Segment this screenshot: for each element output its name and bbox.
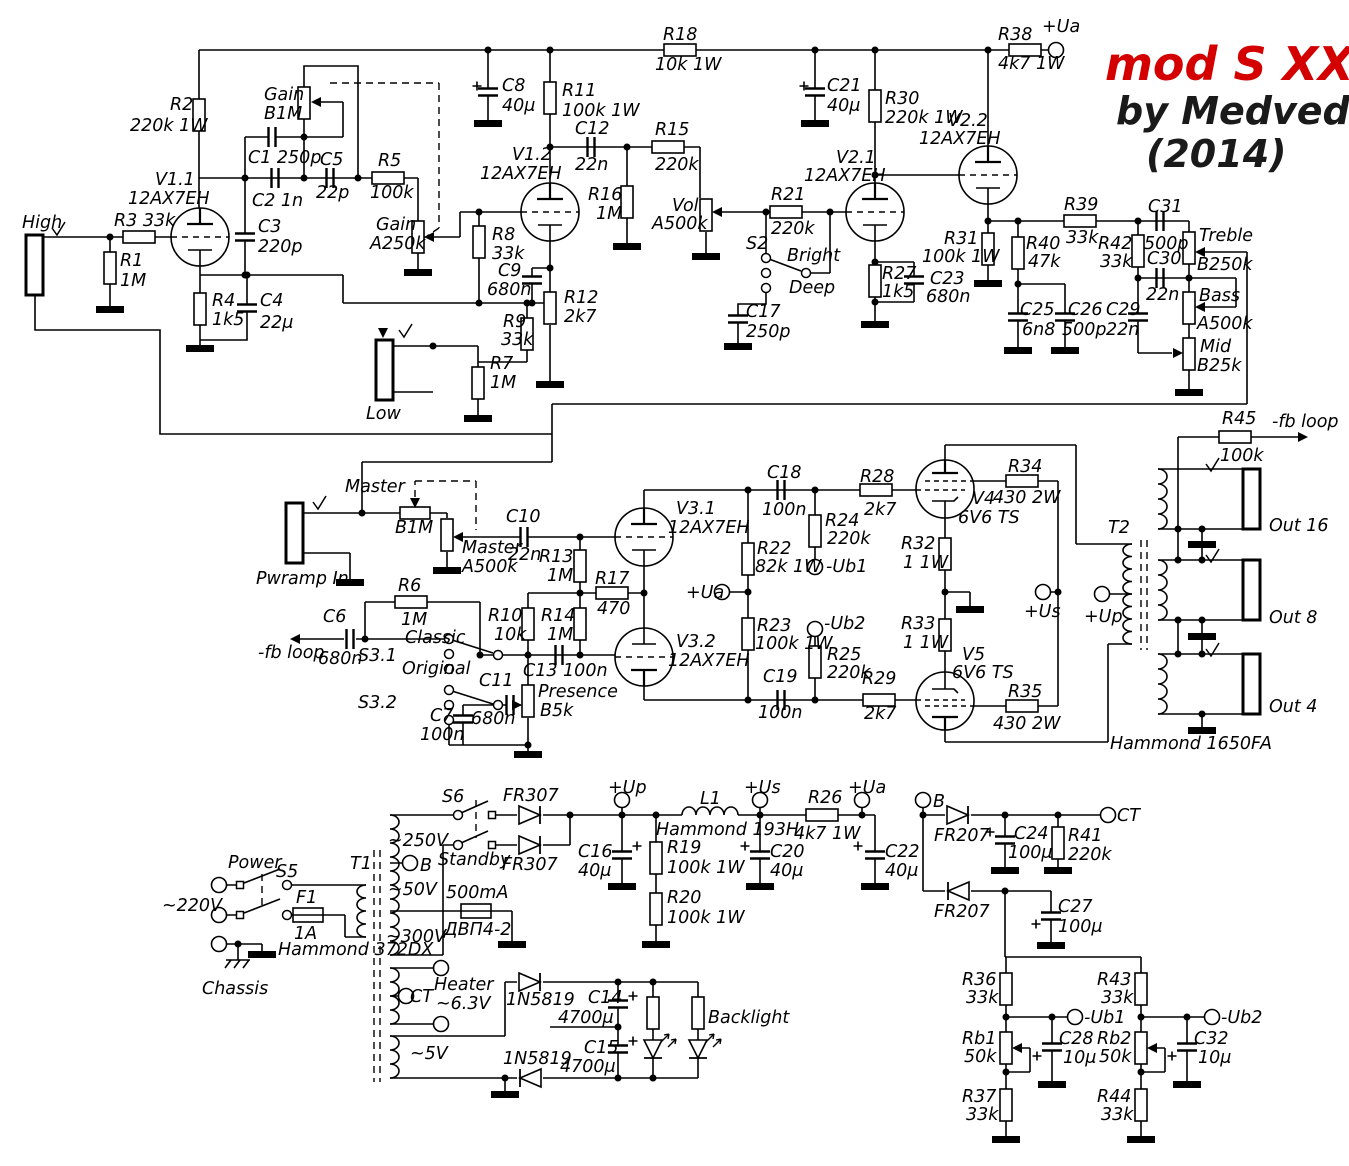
cap-C8 <box>478 89 498 96</box>
label-r19: R19 <box>667 838 701 858</box>
diode-FR207-2 <box>948 882 969 900</box>
wiper-arrow-icon <box>1147 1043 1157 1053</box>
label-r8: R8 <box>492 225 515 245</box>
label-ub2m: -Ub2 <box>824 614 865 634</box>
label-r38v: 4k7 1W <box>998 54 1065 74</box>
label-c7v: 100n <box>420 725 465 745</box>
diode-1N5819-2 <box>520 1069 541 1087</box>
cap-C6 <box>347 629 354 649</box>
resistor-R4 <box>194 293 206 325</box>
ground <box>861 883 889 890</box>
label-c9v: 680n <box>487 280 532 300</box>
label-v250: ~250V <box>388 831 449 851</box>
label-r38: R38 <box>998 25 1032 45</box>
ground <box>608 883 636 890</box>
terminal-ub1-psu <box>1068 1010 1083 1025</box>
coil-T2-sec8 <box>1158 560 1167 620</box>
terminal-ub2-psu <box>1205 1010 1220 1025</box>
diode-FR307-2 <box>519 836 540 854</box>
label-c17v: 250p <box>746 322 791 342</box>
cap-C22 <box>865 852 885 859</box>
label-title1: mod S XX <box>1105 37 1349 91</box>
resistor-backlight-1 <box>647 997 659 1029</box>
label-rb1: Rb1 <box>962 1029 996 1049</box>
switch-S5-contact <box>283 911 292 920</box>
terminal-heater-1 <box>434 961 449 976</box>
ground <box>801 120 829 127</box>
label-c14: C14 <box>588 988 623 1008</box>
label-f1: F1 <box>296 888 317 908</box>
switch-S2-contact <box>762 254 771 263</box>
diode-FR207-1 <box>947 806 968 824</box>
label-v22: V2.2 <box>948 111 988 131</box>
label-classic: Classic <box>405 628 466 648</box>
pot-presence-B5k <box>522 685 534 717</box>
wiper-arrow-icon <box>311 97 321 107</box>
label-c3v: 220p <box>258 237 303 257</box>
switch-S2-contact <box>762 284 771 293</box>
switch-S6-pole <box>489 842 496 849</box>
terminal-B-psu <box>916 793 931 808</box>
label-r40: R40 <box>1026 234 1060 254</box>
label-c15v: 4700μ <box>560 1057 616 1077</box>
tube-amp-schematic: mod S XXby Medved(2014)HighR3 33kR11MV1.… <box>0 0 1349 1166</box>
label-usb: +Us <box>744 778 781 798</box>
ground <box>1188 727 1216 734</box>
ground <box>1044 867 1072 874</box>
label-r10: R10 <box>488 606 522 626</box>
label-r31: R31 <box>944 229 978 249</box>
tube-V2.1 <box>846 183 904 241</box>
switch-S2-contact <box>762 269 771 278</box>
resistor-R8 <box>473 226 485 258</box>
polarity-plus-icon <box>1032 920 1041 929</box>
ground <box>1175 389 1203 396</box>
label-c32: C32 <box>1194 1029 1229 1049</box>
jack-high-input <box>26 235 43 295</box>
label-r26v: 4k7 1W <box>794 824 861 844</box>
label-c5: C5 <box>320 150 343 170</box>
label-c9: C9 <box>498 261 521 281</box>
label-v12: V1.2 <box>512 145 552 165</box>
terminal-up-mid <box>1095 587 1110 602</box>
label-c6: C6 <box>323 607 346 627</box>
label-r28v: 2k7 <box>864 500 896 520</box>
terminal-B-tap <box>403 856 418 871</box>
label-ctt: CT <box>410 987 434 1007</box>
diode-1N5819-1 <box>519 973 540 991</box>
coil-T1-primary <box>357 885 366 937</box>
polarity-plus-icon <box>741 842 750 851</box>
ground <box>404 269 432 276</box>
label-r16: R16 <box>588 185 622 205</box>
resistor-R45 <box>1219 431 1251 443</box>
label-r42: R42 <box>1098 234 1132 254</box>
polarity-plus-icon <box>629 992 638 1001</box>
tube-V3.2 <box>615 628 673 686</box>
label-v31t: 12AX7EH <box>668 518 750 538</box>
switch-S3.1-contact <box>445 650 454 659</box>
pot-bass-A500k <box>1183 292 1195 324</box>
label-t1: T1 <box>350 854 372 874</box>
label-c8: C8 <box>502 76 525 96</box>
label-c5v: 22p <box>316 183 349 203</box>
label-vol: Vol <box>672 196 699 216</box>
label-c11: C11 <box>479 671 514 691</box>
label-r34v: 430 2W <box>993 488 1061 508</box>
polarity-plus-icon <box>629 1037 638 1046</box>
label-c18v: 100n <box>762 500 807 520</box>
led-backlight-1 <box>644 1040 662 1058</box>
label-uam: +Ua <box>686 583 724 603</box>
ground <box>1051 347 1079 354</box>
label-c12v: 22n <box>575 155 608 175</box>
label-low: Low <box>366 404 401 424</box>
label-r2: R2 <box>170 95 193 115</box>
label-master1: Master <box>345 477 407 497</box>
label-c17: C17 <box>746 302 781 322</box>
switch-S5-pole <box>237 912 244 919</box>
label-fr207a: FR207 <box>934 826 990 846</box>
label-r19v: 100k 1W <box>667 858 745 878</box>
switch-S6-contact <box>454 841 463 850</box>
ground <box>1127 1136 1155 1143</box>
ground <box>536 381 564 388</box>
label-c27: C27 <box>1058 897 1093 917</box>
ground <box>861 321 889 328</box>
label-c26v: 500p <box>1062 320 1107 340</box>
tube-V1.2 <box>521 183 579 241</box>
label-r27: R27 <box>882 264 916 284</box>
input-arrow-icon <box>378 328 388 338</box>
label-treblev: B250k <box>1197 255 1253 275</box>
label-r33v: 1 1W <box>903 633 949 653</box>
label-c29: C29 <box>1106 300 1141 320</box>
label-master1v: B1M <box>395 518 433 538</box>
label-r14v: 1M <box>547 625 573 645</box>
label-btap: B <box>420 856 432 876</box>
label-out4: Out 4 <box>1269 697 1317 717</box>
label-s6: S6 <box>442 787 464 807</box>
diode-FR307-1 <box>519 806 540 824</box>
schematic-labels: mod S XXby Medved(2014)HighR3 33kR11MV1.… <box>22 17 1349 1125</box>
label-midv: B25k <box>1197 356 1242 376</box>
ground <box>746 883 774 890</box>
label-chassis: Chassis <box>202 979 268 999</box>
wiper-arrow-icon <box>1012 1043 1022 1053</box>
resistor-R26 <box>806 809 838 821</box>
jack-low-input <box>376 340 393 400</box>
cap-C1 <box>269 127 276 147</box>
terminal-ct-psu <box>1101 808 1116 823</box>
label-bassv: A500k <box>1196 314 1253 334</box>
label-r44v: 33k <box>1101 1105 1134 1125</box>
label-f500: 500mA <box>446 883 508 903</box>
ground <box>433 567 461 574</box>
label-fr307a: FR307 <box>503 786 559 806</box>
coil-T2-sec4 <box>1158 654 1167 714</box>
label-c7: C7 <box>430 706 453 726</box>
label-c29v: 22n <box>1106 320 1139 340</box>
label-r27v: 1k5 <box>882 282 914 302</box>
label-r36v: 33k <box>966 988 999 1008</box>
resistor-R20 <box>650 893 662 925</box>
label-c16: C16 <box>578 842 613 862</box>
label-s32: S3.2 <box>358 693 397 713</box>
label-c20v: 40μ <box>770 861 803 881</box>
ground <box>1037 942 1065 949</box>
label-c28: C28 <box>1059 1029 1094 1049</box>
label-presv: B5k <box>540 701 574 721</box>
label-upm: +Up <box>1084 607 1123 627</box>
label-r24v: 220k <box>827 529 871 549</box>
label-r22v: 82k 1W <box>755 557 822 577</box>
ground <box>974 280 1002 287</box>
ground <box>956 606 984 613</box>
label-c13: C13 100n <box>523 661 608 681</box>
jack-switch-icon <box>313 496 326 509</box>
ground <box>1038 1081 1066 1088</box>
ground <box>248 951 276 958</box>
label-r43v: 33k <box>1101 988 1134 1008</box>
label-v4t: 6V6 TS <box>958 508 1020 528</box>
label-v31: V3.1 <box>676 499 716 519</box>
label-r17: R17 <box>595 569 629 589</box>
pot-Rb1 <box>1000 1032 1012 1064</box>
label-r6: R6 <box>398 576 421 596</box>
label-c24v: 100μ <box>1008 843 1053 863</box>
fuse-F1 <box>293 908 323 922</box>
label-fr207b: FR207 <box>934 902 990 922</box>
label-r12: R12 <box>564 288 598 308</box>
label-s2: S2 <box>746 234 768 254</box>
label-r40v: 47k <box>1028 252 1061 272</box>
label-treble: Treble <box>1199 226 1253 246</box>
resistor-R7 <box>472 367 484 399</box>
fuse-500mA <box>461 904 491 918</box>
label-c4v: 22μ <box>260 313 293 333</box>
label-r14: R14 <box>541 606 575 626</box>
label-fbl2: -fb loop <box>1272 412 1339 432</box>
label-r5v: 100k <box>370 183 414 203</box>
label-v11: V1.1 <box>155 170 195 190</box>
resistor-R13 <box>574 550 586 582</box>
label-d1n a: 1N5819 <box>506 990 575 1010</box>
coil-T1-5v <box>390 1036 399 1078</box>
ground <box>474 120 502 127</box>
polarity-plus-icon <box>633 842 642 851</box>
switch-S3.2-contact <box>445 686 454 695</box>
label-v21t: 12AX7EH <box>804 166 886 186</box>
label-c20: C20 <box>770 842 805 862</box>
label-r39: R39 <box>1064 195 1098 215</box>
label-r9v: 33k <box>501 330 534 350</box>
ground <box>491 1091 519 1098</box>
label-c22: C22 <box>885 842 920 862</box>
label-bb: B <box>933 792 945 812</box>
label-r36: R36 <box>962 970 996 990</box>
resistor-R15 <box>652 141 684 153</box>
label-v12t: 12AX7EH <box>480 164 562 184</box>
resistor-R6 <box>395 596 427 608</box>
label-r31v: 100k 1W <box>922 247 1000 267</box>
label-c4: C4 <box>260 291 283 311</box>
ground <box>464 415 492 422</box>
jack-out-8 <box>1243 560 1260 620</box>
label-c30v: 22n <box>1146 285 1179 305</box>
terminal-220v-1 <box>212 878 227 893</box>
tube-V2.2 <box>959 146 1017 204</box>
label-r37: R37 <box>962 1087 996 1107</box>
label-r5: R5 <box>378 151 401 171</box>
label-gain1v: B1M <box>264 104 302 124</box>
wiper-arrow-icon <box>1173 348 1183 358</box>
label-r7: R7 <box>490 354 513 374</box>
label-c10v: 22n <box>508 545 541 565</box>
label-c21: C21 <box>827 76 862 96</box>
label-c30: C30 <box>1147 249 1182 269</box>
fb-loop-arrow-icon <box>1298 432 1308 442</box>
cap-C7 <box>453 716 473 723</box>
label-r24: R24 <box>825 511 859 531</box>
label-r30: R30 <box>885 89 919 109</box>
label-r35v: 430 2W <box>993 714 1061 734</box>
label-backlight: Backlight <box>708 1008 790 1028</box>
resistor-R41 <box>1052 827 1064 859</box>
label-r11v: 100k 1W <box>562 101 640 121</box>
label-c26: C26 <box>1068 300 1103 320</box>
label-l1v: Hammond 193H <box>656 820 799 840</box>
ground <box>992 1136 1020 1143</box>
resistor-R40 <box>1012 237 1024 269</box>
cap-C3 <box>235 234 255 241</box>
label-v21: V2.1 <box>836 148 876 168</box>
label-uab: +Ua <box>848 778 886 798</box>
label-c12: C12 <box>575 119 610 139</box>
label-r37v: 33k <box>966 1105 999 1125</box>
label-r18v: 10k 1W <box>655 55 722 75</box>
label-v220: ~220V <box>162 896 223 916</box>
label-c3: C3 <box>258 217 281 237</box>
label-gain2: Gain <box>376 215 416 235</box>
label-c23: C23 <box>930 269 965 289</box>
ground <box>1004 347 1032 354</box>
ground <box>613 243 641 250</box>
pot-mid-B25k <box>1183 338 1195 370</box>
label-c14v: 4700μ <box>558 1008 614 1028</box>
label-r35: R35 <box>1008 682 1042 702</box>
cap-C16 <box>612 852 632 859</box>
switch-S6-pole <box>489 812 496 819</box>
label-high: High <box>22 213 62 233</box>
label-c10: C10 <box>506 507 541 527</box>
label-r34: R34 <box>1008 457 1042 477</box>
label-r20: R20 <box>667 888 701 908</box>
switch-S5-pole <box>237 882 244 889</box>
label-standby: Standby <box>438 850 511 870</box>
label-bass: Bass <box>1199 286 1240 306</box>
cap-C21 <box>805 89 825 96</box>
label-c19v: 100n <box>758 703 803 723</box>
label-v5: V5 <box>962 645 985 665</box>
label-rb1v: 50k <box>964 1047 997 1067</box>
label-c19: C19 <box>763 667 798 687</box>
label-r4v: 1k5 <box>212 310 244 330</box>
label-ub1b: -Ub1 <box>1084 1008 1125 1028</box>
label-c27v: 100μ <box>1058 917 1103 937</box>
label-r28: R28 <box>860 467 894 487</box>
label-r29v: 2k7 <box>864 704 896 724</box>
label-r15: R15 <box>655 120 689 140</box>
tube-V3.1 <box>615 508 673 566</box>
tube-V1.1 <box>171 208 229 266</box>
label-deep: Deep <box>789 278 835 298</box>
label-r21: R21 <box>771 185 805 205</box>
label-v5t: 6V6 TS <box>952 663 1014 683</box>
label-c6v: 680n <box>318 649 363 669</box>
label-r9: R9 <box>503 312 526 332</box>
led-ray-icon <box>706 1034 721 1047</box>
label-c24: C24 <box>1014 824 1049 844</box>
resistor-R39 <box>1064 215 1096 227</box>
label-bright: Bright <box>787 246 841 266</box>
label-c18: C18 <box>767 463 802 483</box>
resistor-R1 <box>104 252 116 284</box>
resistor-R42 <box>1132 235 1144 267</box>
ground <box>642 941 670 948</box>
led-ray-icon <box>661 1034 676 1047</box>
label-c23v: 680n <box>926 287 971 307</box>
label-r16v: 1M <box>596 204 622 224</box>
label-r1: R1 <box>120 251 143 271</box>
label-c1: C1 250p <box>248 148 321 168</box>
label-r25: R25 <box>827 645 861 665</box>
wiper-arrow-icon <box>712 207 722 217</box>
label-rb2: Rb2 <box>1097 1029 1131 1049</box>
label-rb2v: 50k <box>1099 1047 1132 1067</box>
label-hammond2: Hammond 1650FA <box>1110 734 1272 754</box>
ground <box>96 306 124 313</box>
switch-S3.1-pole <box>494 651 503 660</box>
label-c32v: 10μ <box>1198 1048 1231 1068</box>
label-s31: S3.1 <box>358 646 397 666</box>
polarity-plus-icon <box>1168 1052 1177 1061</box>
label-r6v: 1M <box>401 610 427 630</box>
resistor-backlight-2 <box>692 997 704 1029</box>
label-s5: S5 <box>276 862 298 882</box>
label-r45v: 100k <box>1220 446 1264 466</box>
label-v4: V4 <box>972 489 995 509</box>
label-ctb: CT <box>1117 806 1141 826</box>
label-r4: R4 <box>212 291 235 311</box>
label-usm: +Us <box>1024 602 1061 622</box>
label-orig: Original <box>402 659 471 679</box>
label-out16: Out 16 <box>1269 516 1329 536</box>
ground <box>1188 541 1216 548</box>
label-v300: ~300V <box>386 927 447 947</box>
label-v32t: 12AX7EH <box>668 651 750 671</box>
label-r26: R26 <box>808 788 842 808</box>
coil-T2-sec16 <box>1158 469 1167 529</box>
resistor-R43 <box>1135 973 1147 1005</box>
resistor-R27 <box>869 265 881 297</box>
cap-C17 <box>728 316 748 323</box>
label-r23: R23 <box>757 616 791 636</box>
schematic-page: mod S XXby Medved(2014)HighR3 33kR11MV1.… <box>0 0 1349 1166</box>
label-v32: V3.2 <box>676 632 716 652</box>
label-r11: R11 <box>562 81 596 101</box>
resistor-R14 <box>574 608 586 640</box>
